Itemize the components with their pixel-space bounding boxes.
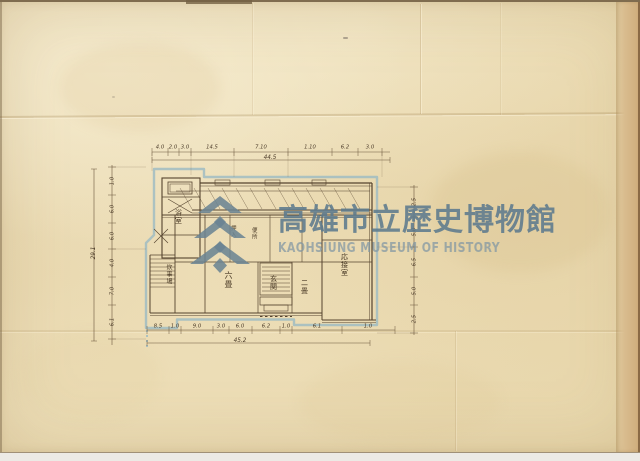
fold-crease-vertical <box>500 3 501 115</box>
dim-left: 1.0 <box>109 177 115 185</box>
dim-bottom: 6.0 <box>236 323 244 329</box>
dim-bottom: 8.5 <box>154 323 162 329</box>
room-label-bath: 浴室 <box>175 209 182 225</box>
fold-crease-vertical <box>420 4 421 114</box>
dim-left-total: 29.1 <box>89 247 96 260</box>
room-label-six-mat: 六畳 <box>224 271 232 289</box>
paper-stain <box>300 362 500 442</box>
room-label-two-mat: 二畳 <box>301 279 308 295</box>
dim-top: 3.0 <box>181 144 189 150</box>
dim-top: 3.0 <box>366 144 374 150</box>
room-label-kitchen: 炊事場 <box>165 264 171 285</box>
dim-left: 6.0 <box>109 205 115 213</box>
dim-top-total: 44.5 <box>264 153 277 160</box>
paper-speck <box>112 96 115 98</box>
paper-fold-edge-right <box>616 2 640 452</box>
dim-left: 6.1 <box>109 318 115 326</box>
dim-left: 4.0 <box>109 259 115 267</box>
dim-top: 1.10 <box>304 144 316 150</box>
room-label-toilet: 便所 <box>250 227 256 240</box>
dim-right: 6.5 <box>411 258 417 266</box>
dim-bottom: 3.0 <box>217 323 225 329</box>
dim-top: 6.2 <box>341 144 349 150</box>
paper-speck <box>343 37 348 39</box>
plan-blue-outline <box>146 169 377 328</box>
dim-left: 7.0 <box>109 287 115 295</box>
room-label-reception: 応接室 <box>341 253 348 277</box>
dim-bottom: 9.0 <box>193 323 201 329</box>
scan-edge-notch <box>186 0 252 4</box>
dim-bottom: 1.0 <box>171 323 179 329</box>
scan-edge-top <box>0 0 640 2</box>
dim-bottom: 6.1 <box>313 323 321 329</box>
dim-right: 2.5 <box>411 198 417 206</box>
dim-right: 5.0 <box>411 228 417 236</box>
dim-top: 2.0 <box>169 144 177 150</box>
dim-bottom-total: 45.2 <box>234 336 247 343</box>
room-label-entrance: 玄関 <box>270 275 277 291</box>
dim-bottom: 1.0 <box>364 323 372 329</box>
fold-crease-vertical <box>252 3 253 115</box>
dim-bottom: 1.0 <box>282 323 290 329</box>
paper-stain <box>60 42 220 132</box>
dim-top: 4.0 <box>156 144 164 150</box>
dim-top: 14.5 <box>206 144 218 150</box>
dim-top: 7.10 <box>255 144 267 150</box>
dim-right: 5.0 <box>411 287 417 295</box>
dim-right: 2.5 <box>411 315 417 323</box>
dim-bottom: 6.2 <box>262 323 270 329</box>
paper-stain <box>430 152 610 272</box>
floor-plan-drawing <box>80 125 440 365</box>
plan-ink-walls <box>150 178 376 323</box>
room-label-closet: 押入 <box>229 225 235 238</box>
dim-left: 6.0 <box>109 232 115 240</box>
floor-plan: 4.0 2.0 3.0 14.5 7.10 1.10 6.2 3.0 44.5 … <box>80 125 440 365</box>
fold-crease-vertical <box>455 331 456 451</box>
scan-edge-left <box>0 2 2 452</box>
